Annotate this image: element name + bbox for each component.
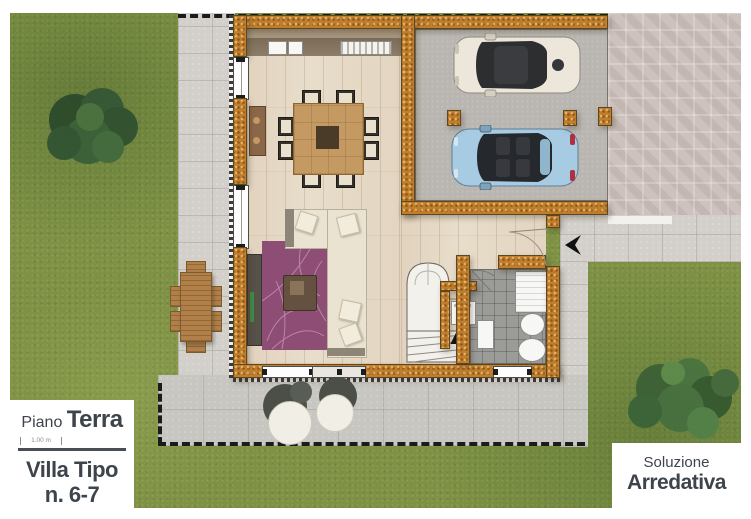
toilet bbox=[518, 338, 546, 362]
sideboard-decor bbox=[253, 117, 260, 124]
dining-chair bbox=[363, 117, 379, 136]
floor-title-prefix: Piano bbox=[21, 414, 62, 431]
sofa-pillow bbox=[338, 299, 362, 323]
wall-north bbox=[233, 15, 608, 29]
window-west-2 bbox=[233, 185, 249, 249]
sofa-armrest bbox=[327, 348, 365, 356]
window-south bbox=[262, 366, 314, 378]
wall-west bbox=[233, 98, 247, 185]
garage-pillar bbox=[447, 110, 461, 126]
entrance-arrow-icon bbox=[563, 233, 583, 257]
villa-label-line2: n. 6-7 bbox=[10, 482, 134, 507]
patio-table bbox=[180, 272, 212, 342]
solution-line1: Soluzione bbox=[612, 454, 741, 471]
sideboard-decor bbox=[253, 137, 260, 144]
kitchen-shelf bbox=[247, 29, 401, 38]
property-boundary-bottom bbox=[158, 442, 585, 446]
villa-label-line1: Villa Tipo bbox=[10, 457, 134, 482]
sideboard bbox=[249, 106, 266, 156]
window-bathroom bbox=[493, 366, 532, 378]
lounger-side-table bbox=[290, 381, 312, 403]
car-blue bbox=[450, 125, 580, 190]
dining-table-center bbox=[316, 126, 339, 149]
wall-garage-south bbox=[401, 201, 608, 215]
floor-title: Piano Terra bbox=[10, 406, 134, 434]
driveway bbox=[608, 13, 741, 218]
floor-caption-panel: Piano Terra 1.00 m Villa Tipo n. 6-7 bbox=[10, 400, 134, 508]
bidet bbox=[520, 313, 545, 336]
rear-patio bbox=[158, 375, 588, 446]
property-boundary-left bbox=[158, 383, 162, 445]
tv-screen bbox=[250, 292, 254, 322]
lounger-seat bbox=[316, 394, 354, 432]
lounger-seat bbox=[268, 401, 312, 445]
sofa-armrest bbox=[285, 209, 294, 247]
dining-chair bbox=[278, 117, 294, 136]
kitchen-sink bbox=[268, 41, 287, 55]
niche-wall bbox=[440, 291, 450, 349]
floor-plan-page: Piano Terra 1.00 m Villa Tipo n. 6-7 Sol… bbox=[0, 0, 751, 519]
car-white bbox=[452, 33, 582, 97]
wall-bathroom-west bbox=[456, 255, 470, 364]
curb-strip bbox=[608, 216, 672, 224]
dining-chair bbox=[278, 141, 294, 160]
solution-caption-panel: Soluzione Arredativa bbox=[612, 443, 741, 508]
wall-west bbox=[233, 247, 247, 378]
shower bbox=[515, 271, 548, 313]
bush-tree bbox=[30, 65, 154, 183]
scale-bar: 1.00 m bbox=[20, 437, 62, 445]
coffee-table-tray bbox=[290, 281, 304, 295]
insulation-hatch bbox=[233, 378, 560, 382]
solution-line2: Arredativa bbox=[612, 471, 741, 495]
kitchen-appliance bbox=[340, 41, 392, 55]
kitchen-hob bbox=[288, 41, 303, 55]
dining-chair bbox=[363, 141, 379, 160]
bath-cabinet bbox=[477, 320, 494, 349]
floor-title-name: Terra bbox=[67, 406, 123, 433]
divider-rule bbox=[18, 448, 126, 451]
wall-garage-divider bbox=[401, 15, 415, 215]
window-west-1 bbox=[233, 57, 249, 100]
bathroom-door bbox=[468, 267, 498, 297]
entrance-door bbox=[504, 215, 550, 269]
wall-east bbox=[546, 266, 560, 378]
garage-pier bbox=[598, 107, 612, 126]
wall-west bbox=[233, 15, 247, 57]
garage-pillar bbox=[563, 110, 577, 126]
